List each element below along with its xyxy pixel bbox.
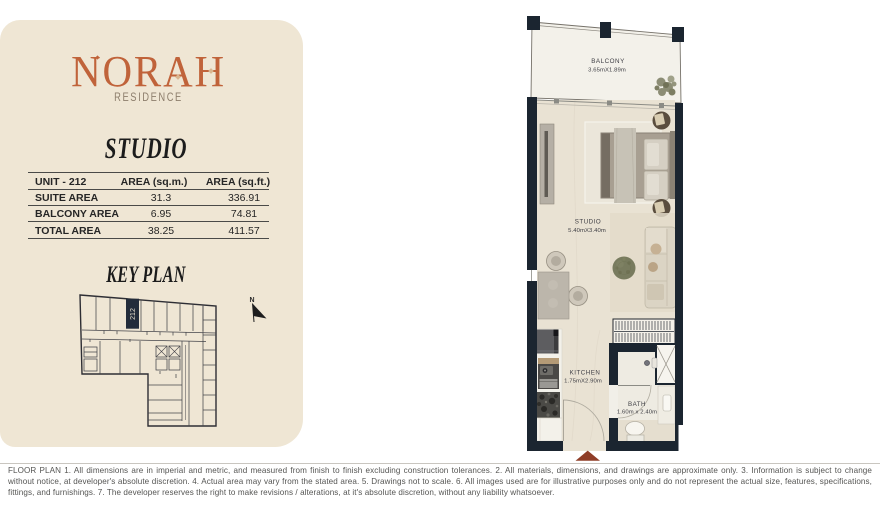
svg-text:BATH: BATH xyxy=(628,401,646,408)
svg-text:STUDIO: STUDIO xyxy=(575,219,601,226)
svg-text:1.75mX2.90m: 1.75mX2.90m xyxy=(564,379,602,385)
svg-text:KITCHEN: KITCHEN xyxy=(570,370,601,377)
svg-text:1.60m x 2.40m: 1.60m x 2.40m xyxy=(617,410,657,416)
svg-text:5.40mX3.40m: 5.40mX3.40m xyxy=(568,228,606,234)
svg-text:BALCONY: BALCONY xyxy=(591,58,625,65)
svg-text:212: 212 xyxy=(130,308,137,320)
svg-text:3.65mX1.89m: 3.65mX1.89m xyxy=(588,68,626,74)
svg-text:N: N xyxy=(249,297,254,304)
